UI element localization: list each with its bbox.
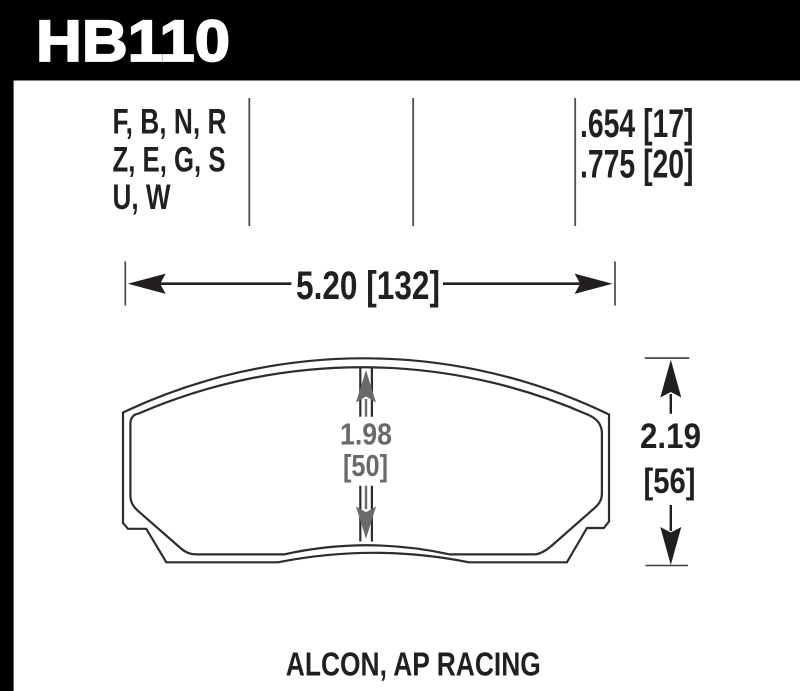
svg-text:Z, E, G, S: Z, E, G, S: [113, 140, 226, 179]
svg-text:.775 [20]: .775 [20]: [580, 143, 694, 187]
svg-text:1.98: 1.98: [340, 417, 392, 452]
svg-text:.654 [17]: .654 [17]: [580, 102, 694, 146]
svg-text:2.19: 2.19: [640, 417, 701, 456]
svg-text:ALCON, AP RACING: ALCON, AP RACING: [286, 646, 541, 683]
svg-text:HB110: HB110: [36, 9, 230, 74]
svg-text:5.20 [132]: 5.20 [132]: [296, 264, 440, 308]
svg-text:F, B, N, R: F, B, N, R: [113, 102, 227, 141]
svg-text:[50]: [50]: [343, 448, 388, 483]
svg-text:[56]: [56]: [644, 462, 696, 501]
svg-text:U, W: U, W: [113, 178, 171, 217]
